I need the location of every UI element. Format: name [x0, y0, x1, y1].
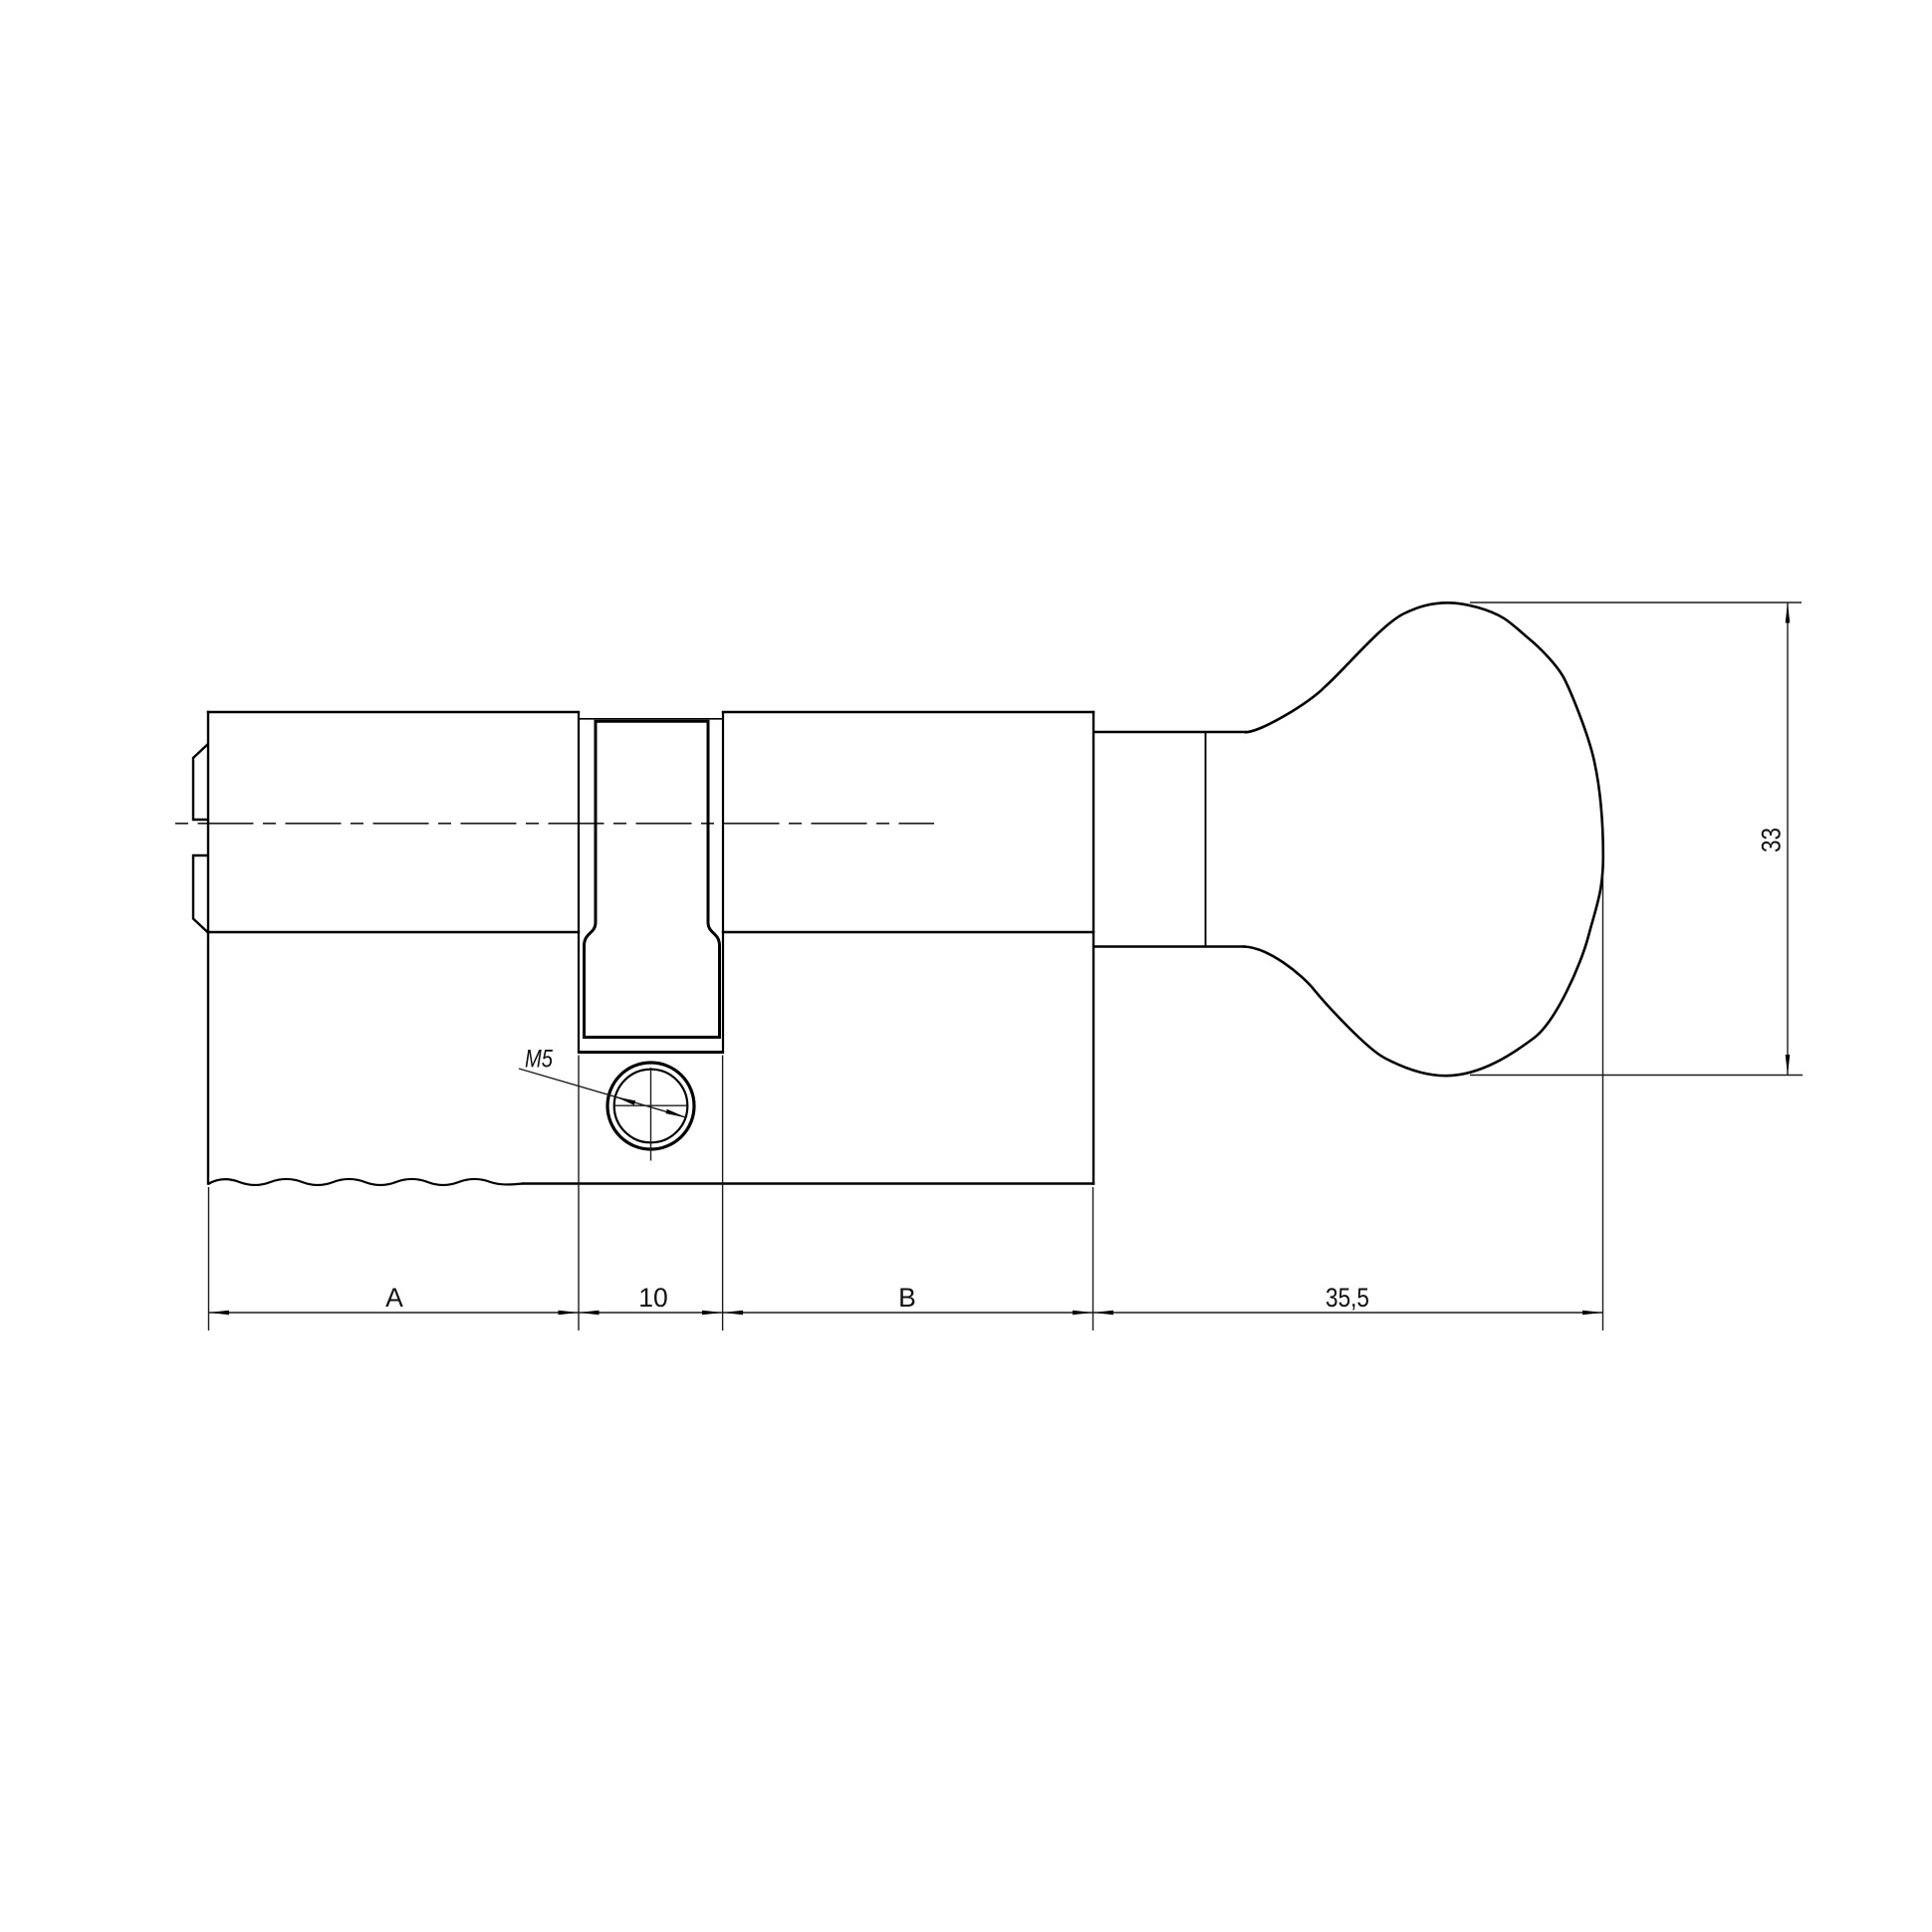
svg-text:35,5: 35,5 [1326, 1283, 1369, 1313]
svg-text:10: 10 [638, 1283, 667, 1313]
svg-text:A: A [385, 1283, 403, 1313]
svg-text:M5: M5 [525, 1046, 553, 1074]
svg-text:33: 33 [1757, 828, 1787, 852]
svg-text:B: B [898, 1283, 916, 1313]
